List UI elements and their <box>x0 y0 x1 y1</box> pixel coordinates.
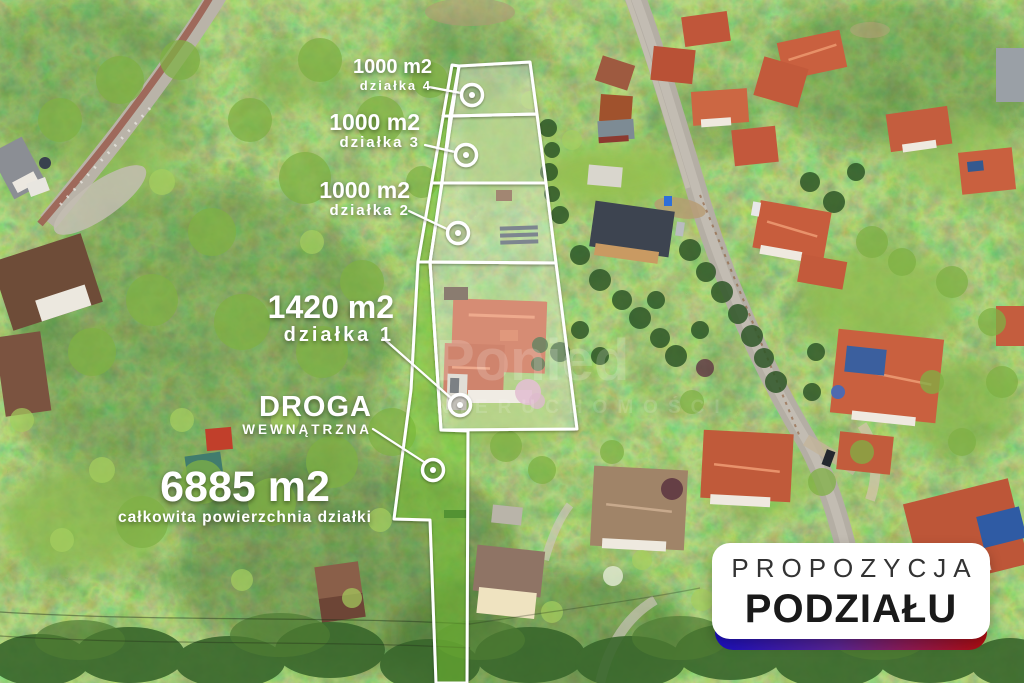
internal-road-label: DROGA WEWNĄTRZNA <box>242 392 372 438</box>
plot-division-graphic: Ponied NIERUCHOMOŚCI 1000 m2 działka 4 1… <box>0 0 1024 683</box>
plot-1-marker <box>450 395 471 416</box>
plot-1-area-text: 1420 m2 <box>268 290 394 325</box>
total-area-caption: całkowita powierzchnia działki <box>102 510 388 527</box>
plot-1-label: 1420 m2 działka 1 <box>268 290 394 346</box>
badge-card: PROPOZYCJA PODZIAŁU <box>712 543 990 639</box>
road-marker <box>423 460 444 481</box>
plot-4-area-text: 1000 m2 <box>353 57 432 79</box>
badge-title-line2: PODZIAŁU <box>745 587 957 632</box>
plot-2-area <box>430 183 556 263</box>
plot-2-marker <box>448 223 469 244</box>
plot-4-label: 1000 m2 działka 4 <box>353 57 432 93</box>
total-area-text: 6885 m2 <box>102 464 388 510</box>
internal-road-title: DROGA <box>242 392 372 423</box>
plot-3-area-text: 1000 m2 <box>329 110 420 135</box>
total-area-label: 6885 m2 całkowita powierzchnia działki <box>102 464 388 527</box>
proposal-badge: PROPOZYCJA PODZIAŁU <box>712 543 990 653</box>
plot-4-name-text: działka 4 <box>353 79 432 93</box>
internal-road-subtitle: WEWNĄTRZNA <box>242 423 372 438</box>
badge-title-line1: PROPOZYCJA <box>724 553 977 584</box>
plot-4-marker <box>462 85 483 106</box>
plot-3-marker <box>456 145 477 166</box>
plot-2-area-text: 1000 m2 <box>319 178 410 203</box>
plot-1-name-text: działka 1 <box>268 325 394 347</box>
plot-2-name-text: działka 2 <box>319 203 410 219</box>
plot-3-label: 1000 m2 działka 3 <box>329 110 420 151</box>
plot-3-name-text: działka 3 <box>329 135 420 151</box>
plot-2-label: 1000 m2 działka 2 <box>319 178 410 219</box>
